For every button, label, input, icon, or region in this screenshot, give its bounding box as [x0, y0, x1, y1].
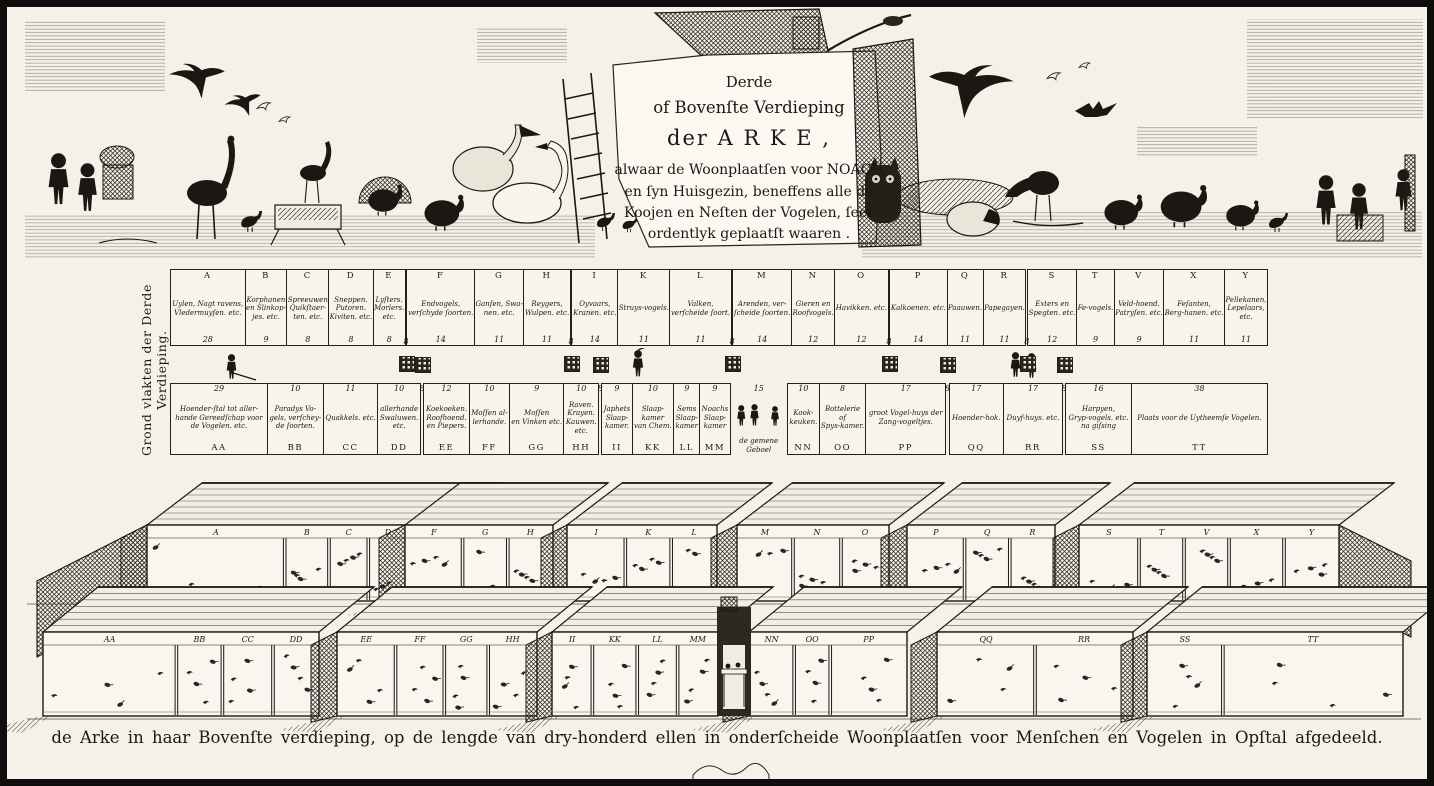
floor-plan: AUylen, Nagt ravens, Vledermuyſen. etc.2… — [170, 269, 1268, 455]
shed-letter-T: T — [1159, 528, 1165, 537]
plan-cell-QQ: 17Hoender-hok.QQ — [950, 384, 1003, 454]
passage-width: 8 — [598, 384, 603, 393]
shed-letter-QQ: QQ — [979, 635, 993, 644]
plan-passage: 8 — [571, 269, 572, 346]
leaves — [883, 16, 903, 26]
plan-cell-RR: 17Duyf-huys. etc.RR — [1003, 384, 1062, 454]
cell-letter: BB — [268, 442, 323, 454]
cell-width-ells: 14 — [572, 335, 617, 345]
cell-letter: TT — [1132, 442, 1267, 454]
plan-cell-B: BKorphanen en Slinkop- jes. etc.9 — [245, 270, 287, 345]
plan-passage: 8 — [599, 383, 601, 455]
cell-label: Struys-vogels. — [618, 282, 669, 335]
cell-letter: C — [287, 270, 328, 282]
cell-letter: F — [407, 270, 474, 282]
plan-cell-Q: QPaauwen.11 — [947, 270, 983, 345]
title-line: en ſyn Huisgezin, beneffens alle de — [625, 184, 874, 200]
plan-cell-KK: 10Slaap- kamer van Chem.KK — [632, 384, 674, 454]
cell-width-ells: 11 — [948, 335, 983, 345]
cell-label: Paauwen. — [948, 282, 983, 335]
cell-label: Fe-vogels. — [1077, 282, 1114, 335]
cell-width-ells: 12 — [792, 335, 834, 345]
plan-cell-K: KStruys-vogels.11 — [617, 270, 669, 345]
shed-letter-LL: LL — [651, 635, 663, 644]
page-fold — [693, 763, 769, 786]
plan-cell-M: MArenden, ver- ſcheide ſoorten.14 — [733, 270, 791, 345]
plan-group: PKalkoenen. etc.14QPaauwen.11RPapegayen.… — [889, 269, 1026, 346]
cell-label: Endvogels, verſchyde ſoorten. — [407, 282, 474, 335]
cell-letter: D — [329, 270, 372, 282]
plan-cell-GG: 9Moſſen en Vinken etc.GG — [509, 384, 563, 454]
dove-icon — [279, 117, 290, 123]
cell-letter: KK — [633, 442, 674, 454]
cell-letter: O — [835, 270, 887, 282]
title-line: Derde — [726, 73, 773, 91]
cell-width-ells: 8 — [374, 335, 405, 345]
plan-cell-HH: 10Raven. Krayen. Kauwen. etc.HH — [563, 384, 598, 454]
cell-width-ells: 14 — [733, 335, 791, 345]
plan-cell-D: DSneppen. Putoren. Kiviten. etc.8 — [328, 270, 372, 345]
cell-width-ells: 11 — [524, 335, 569, 345]
bird-cage-icon — [793, 17, 819, 49]
dove-icon — [1079, 63, 1090, 69]
plan-cell-OO: 8Bottelerie of Spys-kamer.OO — [819, 384, 866, 454]
cell-label: Japhets Slaap- kamer. — [602, 394, 631, 442]
shed-letter-DD: DD — [289, 635, 303, 644]
plan-passage: 8 — [732, 269, 733, 346]
dove-icon — [1047, 73, 1060, 80]
cell-letter: II — [602, 442, 631, 454]
side-label: Grond vlakten der Derde Verdieping. — [139, 265, 169, 475]
plan-cell-PP: 17groot Vogel-huys der Zang-vogeltjes.PP — [865, 384, 945, 454]
plan-cell-BB: 10Paradys Vo- gels, verſchey- de ſoorten… — [267, 384, 323, 454]
plan-passage: 8 — [1026, 269, 1027, 346]
passage-width: 8 — [886, 337, 891, 346]
plan-cell-X: XFeſanten, Berg-hanen. etc.11 — [1163, 270, 1224, 345]
shed-letter-A: A — [212, 528, 219, 537]
shed-letter-B: B — [303, 528, 310, 537]
cell-label: Korphanen en Slinkop- jes. etc. — [246, 282, 287, 335]
shed-letter-X: X — [1253, 528, 1260, 537]
cell-label: Reygers, Wulpen. etc. — [524, 282, 569, 335]
cell-width-ells: 28 — [171, 335, 245, 345]
plan-family-area: 15de gemene Geboel — [731, 383, 787, 455]
grating-icon — [399, 356, 415, 372]
plan-passage: 8 — [406, 269, 407, 346]
cell-width-ells: 9 — [510, 384, 563, 394]
shed-letter-O: O — [862, 528, 869, 537]
plan-group: IOyvaars, Kranen. etc.14KStruys-vogels.1… — [571, 269, 731, 346]
title-line: alwaar de Woonplaatſen voor NOACH — [614, 162, 883, 178]
cell-width-ells: 10 — [470, 384, 509, 394]
plan-cell-A: AUylen, Nagt ravens, Vledermuyſen. etc.2… — [171, 270, 245, 345]
shed-letter-NN: NN — [764, 635, 780, 644]
cell-width-ells: 9 — [1077, 335, 1114, 345]
cell-width-ells: 17 — [950, 384, 1003, 394]
shed-letter-C: C — [346, 528, 352, 537]
plan-cell-I: IOyvaars, Kranen. etc.14 — [572, 270, 617, 345]
cell-letter: RR — [1004, 442, 1062, 454]
cell-label: Moſſen en Vinken etc. — [510, 394, 563, 442]
cell-label: Arenden, ver- ſcheide ſoorten. — [733, 282, 791, 335]
cell-width-ells: 10 — [564, 384, 598, 394]
cell-label: Uylen, Nagt ravens, Vledermuyſen. etc. — [171, 282, 245, 335]
plan-cell-CC: 11Quakkels. etc.CC — [323, 384, 378, 454]
shed-letter-SS: SS — [1180, 635, 1191, 644]
shed-letter-MM: MM — [689, 635, 707, 644]
cell-letter: S — [1028, 270, 1076, 282]
grating-icon — [1020, 356, 1036, 372]
cell-width-ells: 12 — [1028, 335, 1076, 345]
grating-icon — [940, 357, 956, 373]
plan-passage: 8 — [889, 269, 890, 346]
cell-letter: NN — [788, 442, 819, 454]
cell-label: allerhande Swaluwen. etc. — [378, 394, 420, 442]
plan-cell-G: GGanſen, Swa- nen. etc.11 — [474, 270, 523, 345]
title-line: of Bovenſte Verdieping — [653, 98, 845, 117]
cell-label: Duyf-huys. etc. — [1004, 394, 1062, 442]
plan-group: 12Koekoeken. Roofhoend. en Piepers.EE10M… — [423, 383, 599, 455]
bat-icon — [1075, 101, 1117, 117]
passage-width: 8 — [1024, 337, 1029, 346]
eagle-icon — [929, 65, 1014, 118]
plan-cell-Y: YPellekanen, Lepelaars, etc.11 — [1224, 270, 1267, 345]
title-line: Koojen en Neſten der Vogelen, ſeer — [624, 205, 874, 221]
passage-width: 8 — [419, 384, 424, 393]
shed-letter-AA: AA — [103, 635, 116, 644]
cell-label: Kalkoenen. etc. — [890, 282, 946, 335]
cell-letter: R — [984, 270, 1026, 282]
plan-cell-F: FEndvogels, verſchyde ſoorten.14 — [407, 270, 474, 345]
cell-letter: A — [171, 270, 245, 282]
cell-width-ells: 17 — [1004, 384, 1062, 394]
dove-icon — [257, 103, 270, 110]
plan-cell-L: LValken, verſcheide ſoort.11 — [669, 270, 730, 345]
cell-letter: L — [670, 270, 730, 282]
cell-label: Bottelerie of Spys-kamer. — [820, 394, 866, 442]
cell-label: Lyſters. Morlers. etc. — [374, 282, 405, 335]
cell-label: Hoender-ſtal tot aller- hande Gereedſcha… — [171, 394, 267, 442]
passage-width: 8 — [729, 337, 734, 346]
plan-bottom-row: 29Hoender-ſtal tot aller- hande Gereedſc… — [170, 383, 1268, 455]
cell-label: Pellekanen, Lepelaars, etc. — [1225, 282, 1267, 335]
shed-letter-BB: BB — [193, 635, 206, 644]
heron-icon — [300, 141, 331, 203]
cell-letter: FF — [470, 442, 509, 454]
cell-letter: DD — [378, 442, 420, 454]
cell-width-ells: 12 — [424, 384, 469, 394]
cell-label: Spreeuwen Quikſtaer- ten. etc. — [287, 282, 328, 335]
passage-width: 8 — [945, 384, 950, 393]
plan-cell-C: CSpreeuwen Quikſtaer- ten. etc.8 — [286, 270, 328, 345]
plan-cell-MM: 9Noachs Slaap- kamerMM — [699, 384, 729, 454]
plan-group: FEndvogels, verſchyde ſoorten.14GGanſen,… — [406, 269, 570, 346]
plan-group: AUylen, Nagt ravens, Vledermuyſen. etc.2… — [170, 269, 406, 346]
shed-letter-F: F — [430, 528, 437, 537]
cell-label: Feſanten, Berg-hanen. etc. — [1164, 282, 1224, 335]
shed-letter-RR: RR — [1077, 635, 1090, 644]
plan-cell-H: HReygers, Wulpen. etc.11 — [523, 270, 569, 345]
cell-width-ells: 14 — [407, 335, 474, 345]
cell-label: Quakkels. etc. — [324, 394, 378, 442]
cell-label: Exters en Spegten. etc. — [1028, 282, 1076, 335]
shed-letter-N: N — [813, 528, 822, 537]
plan-group: 10Kook- keuken.NN8Bottelerie of Spys-kam… — [787, 383, 946, 455]
cell-width-ells: 12 — [835, 335, 887, 345]
pelican-icon — [453, 125, 541, 191]
cell-width-ells: 9 — [674, 384, 699, 394]
plan-top-row: AUylen, Nagt ravens, Vledermuyſen. etc.2… — [170, 269, 1268, 346]
plan-cell-V: VVeld-hoend. Patryſen. etc.9 — [1114, 270, 1163, 345]
shed-letter-M: M — [760, 528, 770, 537]
grating-icon — [593, 357, 609, 373]
eagle-icon — [169, 64, 225, 99]
cell-label: Koekoeken. Roofhoend. en Piepers. — [424, 394, 469, 442]
shed-letter-II: II — [568, 635, 576, 644]
cell-width-ells: 8 — [329, 335, 372, 345]
cell-width-ells: 15 — [754, 384, 764, 393]
cell-letter: PP — [866, 442, 945, 454]
hoist-post — [1405, 155, 1415, 231]
cell-letter: CC — [324, 442, 378, 454]
title-line: der A R K E , — [667, 126, 831, 150]
hawk-icon — [223, 90, 264, 120]
plan-cell-FF: 10Moſſen al- lerhande.FF — [469, 384, 509, 454]
cell-letter: QQ — [950, 442, 1003, 454]
plan-group: SExters en Spegten. etc.12TFe-vogels.9VV… — [1027, 269, 1268, 346]
shed-letter-P: P — [932, 528, 939, 537]
cell-label: Valken, verſcheide ſoort. — [670, 282, 730, 335]
grating-icon — [1057, 357, 1073, 373]
cell-letter: G — [475, 270, 523, 282]
cell-width-ells: 11 — [618, 335, 669, 345]
cell-letter: I — [572, 270, 617, 282]
family-area-label: de gemene Geboel — [739, 437, 778, 454]
passage-width: 8 — [569, 337, 574, 346]
cell-letter: Y — [1225, 270, 1267, 282]
shed-letter-TT: TT — [1308, 635, 1319, 644]
plan-cell-II: 9Japhets Slaap- kamer.II — [602, 384, 631, 454]
shed-letter-KK: KK — [608, 635, 622, 644]
grating-icon — [564, 356, 580, 372]
shed-letter-H: H — [526, 528, 535, 537]
cell-label: Havikken. etc. — [835, 282, 887, 335]
cell-letter: N — [792, 270, 834, 282]
plan-passage: 8 — [1063, 383, 1065, 455]
plan-cell-R: RPapegayen.11 — [983, 270, 1026, 345]
cell-letter: P — [890, 270, 946, 282]
cell-label: Kook- keuken. — [788, 394, 819, 442]
title-cartouche: Derde of Bovenſte Verdieping der A R K E… — [563, 9, 921, 247]
plan-group: 17Hoender-hok.QQ17Duyf-huys. etc.RR — [949, 383, 1063, 455]
plan-group: 29Hoender-ſtal tot aller- hande Gereedſc… — [170, 383, 421, 455]
walking-figure — [628, 348, 682, 382]
shed-letter-K: K — [644, 528, 652, 537]
shed-letter-Q: Q — [984, 528, 991, 537]
plan-cell-E: ELyſters. Morlers. etc.8 — [373, 270, 405, 345]
cell-width-ells: 17 — [866, 384, 945, 394]
shed-letter-GG: GG — [460, 635, 473, 644]
cell-label: Moſſen al- lerhande. — [470, 394, 509, 442]
central-chamber — [717, 597, 751, 716]
grating-icon — [725, 356, 741, 372]
cell-label: Slaap- kamer van Chem. — [633, 394, 674, 442]
plan-cell-DD: 10allerhande Swaluwen. etc.DD — [377, 384, 420, 454]
shed-letter-OO: OO — [806, 635, 820, 644]
cell-letter: Q — [948, 270, 983, 282]
plan-cell-SS: 16Harpyen, Gryp-vogels. etc. na giſsingS… — [1066, 384, 1131, 454]
shed-letter-G: G — [482, 528, 489, 537]
cell-width-ells: 16 — [1066, 384, 1131, 394]
shed-letter-HH: HH — [505, 635, 521, 644]
engraving-page: Derde of Bovenſte Verdieping der A R K E… — [0, 0, 1434, 786]
shed-letter-CC: CC — [242, 635, 254, 644]
cell-width-ells: 11 — [324, 384, 378, 394]
plan-group: MArenden, ver- ſcheide ſoorten.14NGieren… — [732, 269, 888, 346]
cell-width-ells: 9 — [602, 384, 631, 394]
plan-cell-S: SExters en Spegten. etc.12 — [1028, 270, 1076, 345]
cell-label: Sneppen. Putoren. Kiviten. etc. — [329, 282, 372, 335]
title-line: ordentlyk geplaatſt waaren . — [648, 226, 850, 242]
shed-letter-Y: Y — [1309, 528, 1315, 537]
cell-letter: E — [374, 270, 405, 282]
sweeper-figure — [222, 352, 276, 386]
cell-width-ells: 11 — [984, 335, 1026, 345]
cell-width-ells: 38 — [1132, 384, 1267, 394]
plan-cell-NN: 10Kook- keuken.NN — [788, 384, 819, 454]
cell-letter: V — [1115, 270, 1163, 282]
cell-label: Paradys Vo- gels, verſchey- de ſoorten. — [268, 394, 323, 442]
plan-cell-O: OHavikken. etc.12 — [834, 270, 887, 345]
cell-letter: SS — [1066, 442, 1131, 454]
cell-label: Plaats voor de Uytheemſe Vogelen. — [1132, 394, 1267, 442]
cell-width-ells: 10 — [268, 384, 323, 394]
cell-letter: LL — [674, 442, 699, 454]
cell-label: groot Vogel-huys der Zang-vogeltjes. — [866, 394, 945, 442]
turkey-icon — [359, 177, 411, 216]
cell-letter: HH — [564, 442, 598, 454]
cell-label: Sems Slaap- kamer — [674, 394, 699, 442]
cell-width-ells: 10 — [378, 384, 420, 394]
cell-width-ells: 10 — [633, 384, 674, 394]
cell-label: Hoender-hok. — [950, 394, 1003, 442]
chest — [1337, 215, 1383, 241]
cell-label: Papegayen. — [984, 282, 1026, 335]
plan-cell-AA: 29Hoender-ſtal tot aller- hande Gereedſc… — [171, 384, 267, 454]
cell-letter: OO — [820, 442, 866, 454]
cell-label: Gieren en Roofvogels. — [792, 282, 834, 335]
plan-cell-P: PKalkoenen. etc.14 — [890, 270, 946, 345]
cell-width-ells: 8 — [820, 384, 866, 394]
plan-group: 16Harpyen, Gryp-vogels. etc. na giſsingS… — [1065, 383, 1268, 455]
cell-width-ells: 9 — [1115, 335, 1163, 345]
grating-icon — [721, 597, 737, 611]
caption: de Arke in haar Bovenſte verdieping, op … — [7, 728, 1427, 747]
table — [721, 669, 747, 674]
cell-letter: H — [524, 270, 569, 282]
cell-letter: MM — [700, 442, 729, 454]
cell-width-ells: 11 — [670, 335, 730, 345]
cell-letter: K — [618, 270, 669, 282]
shed-letter-PP: PP — [862, 635, 874, 644]
cell-label: Oyvaars, Kranen. etc. — [572, 282, 617, 335]
cell-letter: T — [1077, 270, 1114, 282]
plan-passage: 8 — [421, 383, 423, 455]
grating-icon — [415, 357, 431, 373]
plan-cell-N: NGieren en Roofvogels.12 — [791, 270, 834, 345]
cell-width-ells: 11 — [1225, 335, 1267, 345]
cell-letter: AA — [171, 442, 267, 454]
cell-width-ells: 9 — [246, 335, 287, 345]
noah-family-figures — [733, 403, 785, 427]
cell-width-ells: 11 — [475, 335, 523, 345]
shed-letter-S: S — [1106, 528, 1112, 537]
cell-letter: B — [246, 270, 287, 282]
plan-passage: 8 — [946, 383, 948, 455]
plan-cell-LL: 9Sems Slaap- kamerLL — [673, 384, 699, 454]
cell-width-ells: 8 — [287, 335, 328, 345]
passage-width: 8 — [1061, 384, 1066, 393]
cell-width-ells: 14 — [890, 335, 946, 345]
plan-cell-TT: 38Plaats voor de Uytheemſe Vogelen.TT — [1131, 384, 1267, 454]
cell-label: Noachs Slaap- kamer — [700, 394, 729, 442]
cell-letter: M — [733, 270, 791, 282]
cell-width-ells: 11 — [1164, 335, 1224, 345]
cell-letter: X — [1164, 270, 1224, 282]
cell-label: Harpyen, Gryp-vogels. etc. na giſsing — [1066, 394, 1131, 442]
pelican-icon — [947, 202, 1000, 236]
cell-label: Raven. Krayen. Kauwen. etc. — [564, 394, 598, 442]
shed-letter-L: L — [690, 528, 696, 537]
plan-cell-EE: 12Koekoeken. Roofhoend. en Piepers.EE — [424, 384, 469, 454]
shed-letter-R: R — [1028, 528, 1035, 537]
shed-letter-FF: FF — [413, 635, 426, 644]
cell-label: Veld-hoend. Patryſen. etc. — [1115, 282, 1163, 335]
cell-letter: EE — [424, 442, 469, 454]
plan-middle-band — [170, 346, 1268, 383]
passage-width: 8 — [403, 337, 408, 346]
cell-width-ells: 9 — [700, 384, 729, 394]
cell-label: Ganſen, Swa- nen. etc. — [475, 282, 523, 335]
shed-letter-EE: EE — [359, 635, 372, 644]
plan-cell-T: TFe-vogels.9 — [1076, 270, 1114, 345]
grating-icon — [882, 356, 898, 372]
cell-letter: GG — [510, 442, 563, 454]
plan-group: 9Japhets Slaap- kamer.II10Slaap- kamer v… — [601, 383, 730, 455]
cell-width-ells: 10 — [788, 384, 819, 394]
